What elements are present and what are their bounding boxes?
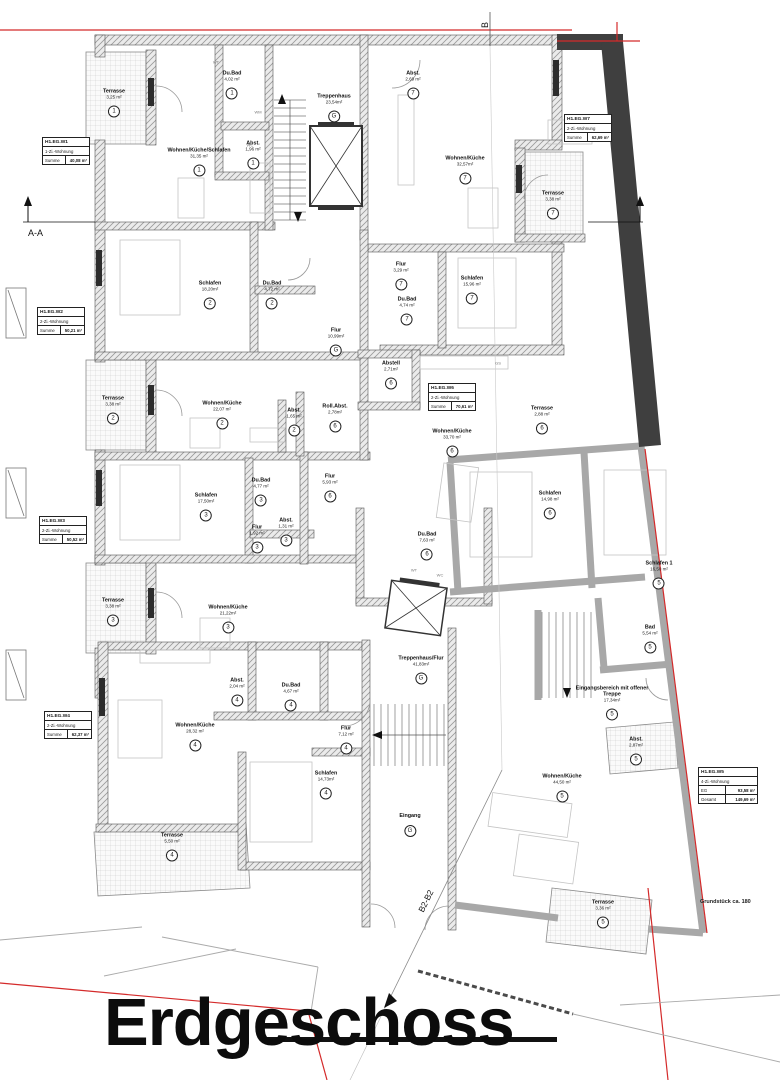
unit-badge: G xyxy=(404,825,416,837)
room-label: Flur3,29 m²7 xyxy=(393,261,408,290)
room-label: Du.Bad4,74 m²7 xyxy=(398,296,417,325)
room-label: Wohnen/Küche32,57m²7 xyxy=(445,155,484,184)
unit-badge: 1 xyxy=(108,106,120,118)
apartment-type: 4-Zi.-Wohnung xyxy=(699,777,757,786)
apartment-id: H1.EG.W4 xyxy=(45,712,91,721)
unit-badge: 3 xyxy=(280,535,292,547)
unit-badge: 6 xyxy=(329,421,341,433)
appliance-label: GS xyxy=(495,361,501,366)
apartment-type: 2-Zi.-Wohnung xyxy=(40,526,86,535)
unit-badge: 1 xyxy=(193,165,205,177)
unit-badge: 4 xyxy=(231,695,243,707)
room-label: Flur1,92 m²3 xyxy=(249,524,264,553)
room-label: EingangG xyxy=(399,813,420,837)
room-label: Treppenhaus/Flur41,83m²G xyxy=(398,655,443,684)
unit-badge: 2 xyxy=(266,298,278,310)
apartment-table-w4: H1.EG.W4 2-Zi.-Wohnung Summe62,37 m² xyxy=(44,711,92,739)
unit-badge: 7 xyxy=(459,173,471,185)
unit-badge: 5 xyxy=(653,578,665,590)
unit-badge: 2 xyxy=(288,425,300,437)
section-marker-aa: A-A xyxy=(28,228,43,238)
unit-badge: 2 xyxy=(216,418,228,430)
unit-badge: 5 xyxy=(630,754,642,766)
room-label: Terrasse3,38 m²7 xyxy=(542,190,564,219)
apartment-table-w6: H1.EG.W6 2-Zi.-Wohnung Summe70,61 m² xyxy=(428,383,476,411)
room-label: Abst.1,65 m²2 xyxy=(286,407,301,436)
site-note: Grundstück ca. 180 xyxy=(700,899,751,905)
elevator-shaft xyxy=(310,122,362,210)
unit-badge: 7 xyxy=(395,279,407,291)
unit-badge: 3 xyxy=(107,615,119,627)
appliance-label: WM xyxy=(254,110,261,115)
unit-badge: 4 xyxy=(166,850,178,862)
room-label: Wohnen/Küche/Schlafen31,35 m²1 xyxy=(167,147,230,176)
room-label: Du.Bad4,02 m²1 xyxy=(223,70,242,99)
floor-plan-page: { "title": "Erdgeschoss", "site_note": "… xyxy=(0,0,780,1080)
page-title: Erdgeschoss xyxy=(104,984,514,1061)
apartment-id: H1.EG.W3 xyxy=(40,517,86,526)
unit-badge: G xyxy=(328,111,340,123)
apartment-table-w2: H1.EG.W2 2-Zi.-Wohnung Summe50,21 m² xyxy=(37,307,85,335)
unit-badge: G xyxy=(415,673,427,685)
apartment-table-w7: H1.EG.W7 2-Zi.-Wohnung Summe62,69 m² xyxy=(564,114,612,142)
unit-badge: 5 xyxy=(597,917,609,929)
unit-badge: 4 xyxy=(320,788,332,800)
apartment-type: 1-Zi.-Wohnung xyxy=(43,147,89,156)
apartment-table-w1: H1.EG.W1 1-Zi.-Wohnung Summe40,08 m² xyxy=(42,137,90,165)
staircase-entrance xyxy=(372,704,446,766)
unit-badge: 3 xyxy=(200,510,212,522)
room-label: Abst.1,31 m²3 xyxy=(278,517,293,546)
appliance-label: WT xyxy=(411,568,417,573)
room-label: Wohnen/Küche28,32 m²4 xyxy=(175,722,214,751)
room-label: Flur10,99m²G xyxy=(328,327,345,356)
room-label: Terrasse3,38 m²3 xyxy=(102,597,124,626)
unit-badge: 1 xyxy=(247,158,259,170)
unit-badge: 6 xyxy=(421,549,433,561)
room-label: Du.Bad4,67 m²4 xyxy=(282,682,301,711)
appliance-label: WC xyxy=(247,143,254,148)
unit-badge: 4 xyxy=(340,743,352,755)
room-label: Terrasse5,50 m²4 xyxy=(161,832,183,861)
unit-badge: 1 xyxy=(226,88,238,100)
unit-badge: 4 xyxy=(285,700,297,712)
room-label: Wohnen/Küche21,22m²3 xyxy=(208,604,247,633)
apartment-id: H1.EG.W6 xyxy=(429,384,475,393)
unit-badge: 7 xyxy=(401,314,413,326)
apartment-table-w3: H1.EG.W3 2-Zi.-Wohnung Summe50,52 m² xyxy=(39,516,87,544)
room-label: Schlafen 116,50 m²5 xyxy=(646,560,673,589)
unit-badge: 5 xyxy=(644,642,656,654)
floor-plan-drawing xyxy=(0,0,780,1080)
room-label: Schlafen17,50m²3 xyxy=(195,492,217,521)
room-label: Du.Bad4,77 m²3 xyxy=(252,477,271,506)
room-label: Eingangsbereich mit offener Treppe17,34m… xyxy=(570,685,654,720)
room-label: Terrasse3,36 m²5 xyxy=(592,899,614,928)
apartment-id: H1.EG.W7 xyxy=(565,115,611,124)
apartment-table-w5: H1.EG.W5 4-Zi.-Wohnung EG93,58 m² Gesamt… xyxy=(698,767,758,804)
unit-badge: 3 xyxy=(255,495,267,507)
room-label: Abstell2,71m²6 xyxy=(382,360,400,389)
room-label: Flur7,12 m²4 xyxy=(338,725,353,754)
apartment-type: 2-Zi.-Wohnung xyxy=(45,721,91,730)
unit-badge: 7 xyxy=(547,208,559,220)
apartment-type: 2-Zi.-Wohnung xyxy=(429,393,475,402)
unit-badge: 5 xyxy=(556,791,568,803)
door-arcs xyxy=(156,60,668,930)
room-label: Schlafen15,96 m²7 xyxy=(461,275,483,304)
unit-badge: G xyxy=(330,345,342,357)
room-label: Terrasse3,38 m²2 xyxy=(102,395,124,424)
room-label: Treppenhaus23,54m²G xyxy=(317,93,351,122)
apartment-type: 2-Zi.-Wohnung xyxy=(565,124,611,133)
apartment-id: H1.EG.W5 xyxy=(699,768,757,777)
room-label: Schlafen18,20m²2 xyxy=(199,280,221,309)
room-label: Terrasse2,88 m²6 xyxy=(531,405,553,434)
room-label: Schlafen14,98 m²6 xyxy=(539,490,561,519)
unit-badge: 2 xyxy=(107,413,119,425)
room-label: Wohnen/Küche33,70 m²6 xyxy=(432,428,471,457)
room-label: Roll.Abst.2,78m²6 xyxy=(322,403,347,432)
unit-badge: 3 xyxy=(251,542,263,554)
unit-badge: 7 xyxy=(466,293,478,305)
appliance-label: WT xyxy=(213,60,219,65)
unit-badge: 6 xyxy=(446,446,458,458)
margin-window-symbols xyxy=(6,288,26,700)
room-label: Schlafen14,73m²4 xyxy=(315,770,337,799)
unit-badge: 5 xyxy=(606,709,618,721)
room-label: Du.Bad4,72 m²2 xyxy=(263,280,282,309)
room-label: Flur5,93 m²6 xyxy=(322,473,337,502)
room-label: Wohnen/Küche22,07 m²2 xyxy=(202,400,241,429)
elevator-shaft-2 xyxy=(385,576,448,635)
section-marker-b: B xyxy=(480,22,490,28)
unit-badge: 2 xyxy=(204,298,216,310)
apartment-id: H1.EG.W2 xyxy=(38,308,84,317)
room-label: Du.Bad7,63 m²6 xyxy=(418,531,437,560)
unit-badge: 7 xyxy=(407,88,419,100)
staircase-main xyxy=(274,94,306,222)
unit-badge: 4 xyxy=(189,740,201,752)
apartment-type: 2-Zi.-Wohnung xyxy=(38,317,84,326)
room-label: Wohnen/Küche44,50 m²5 xyxy=(542,773,581,802)
unit-badge: 6 xyxy=(385,378,397,390)
room-label: Bad5,54 m²5 xyxy=(642,624,657,653)
unit-badge: 3 xyxy=(222,622,234,634)
room-label: Abst.2,87m²5 xyxy=(629,736,643,765)
room-label: Terrasse3,25 m²1 xyxy=(103,88,125,117)
appliance-label: WC xyxy=(437,573,444,578)
unit-badge: 6 xyxy=(324,491,336,503)
unit-badge: 6 xyxy=(544,508,556,520)
unit-badge: 6 xyxy=(536,423,548,435)
room-label: Abst.2,04 m²4 xyxy=(229,677,244,706)
room-label: Abst.2,69 m²7 xyxy=(405,70,420,99)
apartment-id: H1.EG.W1 xyxy=(43,138,89,147)
